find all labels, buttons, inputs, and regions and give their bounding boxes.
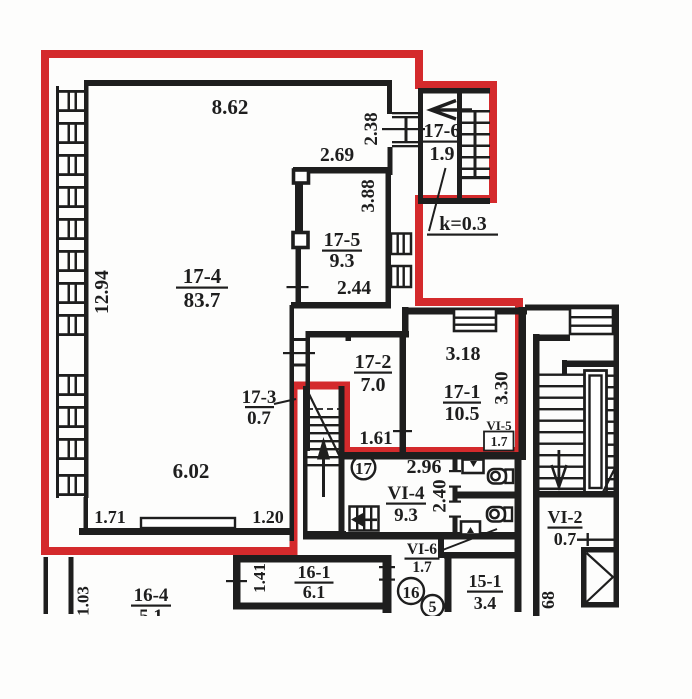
svg-text:2.96: 2.96 xyxy=(407,456,442,478)
svg-text:2.44: 2.44 xyxy=(337,278,371,299)
svg-text:17: 17 xyxy=(355,459,373,478)
svg-text:3.30: 3.30 xyxy=(492,371,513,404)
svg-text:3.88: 3.88 xyxy=(358,179,379,212)
svg-text:16: 16 xyxy=(403,583,420,602)
svg-text:1.7: 1.7 xyxy=(491,434,508,449)
svg-text:9.3: 9.3 xyxy=(394,505,418,526)
svg-text:0.7: 0.7 xyxy=(554,529,577,549)
svg-text:2.38: 2.38 xyxy=(361,112,382,145)
svg-text:1.41: 1.41 xyxy=(250,563,269,593)
svg-text:k=0.3: k=0.3 xyxy=(439,213,487,235)
svg-text:1.03: 1.03 xyxy=(74,586,93,616)
svg-text:17-5: 17-5 xyxy=(324,229,361,251)
svg-text:3.4: 3.4 xyxy=(474,593,497,613)
svg-text:1.61: 1.61 xyxy=(359,428,392,449)
svg-text:16-1: 16-1 xyxy=(298,562,331,582)
svg-text:3.18: 3.18 xyxy=(446,343,481,365)
svg-text:17-1: 17-1 xyxy=(444,381,481,403)
svg-text:17-2: 17-2 xyxy=(355,351,392,373)
svg-text:1.9: 1.9 xyxy=(430,143,455,165)
svg-text:17-6: 17-6 xyxy=(424,120,461,142)
svg-text:68: 68 xyxy=(538,591,558,609)
svg-text:12.94: 12.94 xyxy=(92,270,113,314)
svg-text:1.7: 1.7 xyxy=(412,559,432,576)
svg-text:VI-4: VI-4 xyxy=(388,483,425,504)
svg-text:2.40: 2.40 xyxy=(430,479,451,512)
svg-text:10.5: 10.5 xyxy=(445,403,480,425)
svg-text:9.3: 9.3 xyxy=(330,250,355,272)
svg-text:6.02: 6.02 xyxy=(173,459,210,483)
svg-text:17-3: 17-3 xyxy=(242,387,277,408)
svg-text:VI-6: VI-6 xyxy=(407,541,437,558)
svg-text:5: 5 xyxy=(429,599,437,616)
svg-text:2.69: 2.69 xyxy=(320,145,354,166)
svg-text:1.20: 1.20 xyxy=(252,507,284,527)
svg-text:15-1: 15-1 xyxy=(469,571,502,591)
svg-text:0.7: 0.7 xyxy=(247,408,271,429)
svg-text:VI-5: VI-5 xyxy=(486,418,512,433)
svg-text:17-4: 17-4 xyxy=(183,264,222,288)
svg-text:7.0: 7.0 xyxy=(361,374,386,396)
svg-text:6.1: 6.1 xyxy=(303,582,326,602)
svg-text:8.62: 8.62 xyxy=(212,95,249,119)
svg-text:83.7: 83.7 xyxy=(184,288,221,312)
svg-text:16-4: 16-4 xyxy=(134,585,169,606)
svg-text:VI-2: VI-2 xyxy=(548,507,583,527)
svg-text:1.71: 1.71 xyxy=(94,507,126,527)
